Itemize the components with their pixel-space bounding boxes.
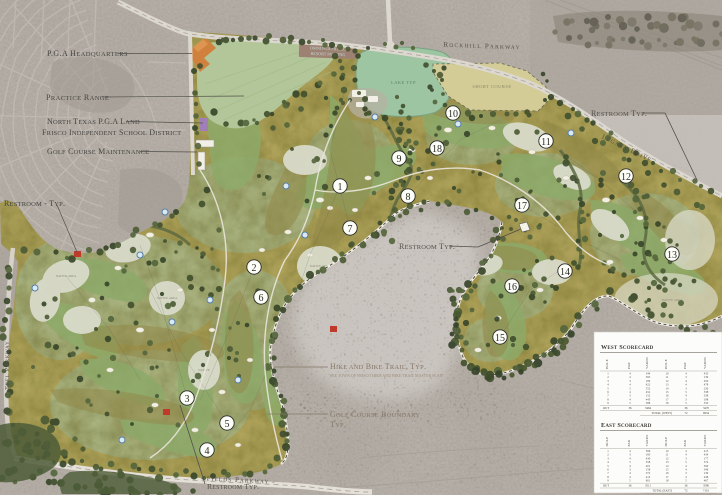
svg-text:WEST SCORECARD: WEST SCORECARD [601, 344, 654, 351]
svg-text:GOLF COURSE BOUNDARY: GOLF COURSE BOUNDARY [330, 410, 420, 419]
svg-text:12: 12 [621, 172, 631, 183]
svg-text:15: 15 [495, 333, 505, 344]
svg-text:601: 601 [646, 479, 651, 483]
svg-text:3511: 3511 [645, 484, 651, 488]
svg-text:16: 16 [507, 282, 517, 293]
svg-text:72: 72 [685, 411, 689, 415]
svg-text:3470: 3470 [703, 406, 710, 410]
svg-text:550: 550 [704, 401, 709, 405]
svg-text:3590: 3590 [703, 484, 710, 488]
svg-text:YARDS: YARDS [703, 357, 707, 369]
svg-text:EAST SCORECARD: EAST SCORECARD [601, 422, 652, 429]
svg-text:9: 9 [397, 154, 402, 165]
svg-text:YARDS: YARDS [645, 434, 649, 446]
svg-text:36: 36 [629, 484, 633, 488]
svg-text:TOTAL (WEST): TOTAL (WEST) [652, 411, 672, 415]
svg-text:PAR: PAR [683, 439, 687, 446]
svg-text:1: 1 [338, 182, 343, 193]
svg-text:NATIVE AREA: NATIVE AREA [56, 274, 78, 278]
svg-text:3464: 3464 [645, 406, 652, 410]
svg-text:LAKE TYP.: LAKE TYP. [391, 80, 417, 85]
svg-text:OUT: OUT [603, 406, 609, 410]
svg-text:36: 36 [685, 406, 689, 410]
svg-text:18: 18 [432, 144, 442, 155]
svg-text:467: 467 [704, 479, 709, 483]
svg-text:HOLE: HOLE [664, 437, 668, 447]
svg-text:14: 14 [560, 267, 570, 278]
svg-text:36: 36 [685, 484, 689, 488]
svg-text:SHORT COURSE: SHORT COURSE [472, 84, 511, 89]
svg-text:HOLE: HOLE [605, 359, 609, 369]
svg-text:P.G.A HEADQUARTERS: P.G.A HEADQUARTERS [47, 49, 128, 58]
svg-text:PRACTICE RANGE: PRACTICE RANGE [46, 93, 109, 102]
svg-text:72: 72 [685, 489, 689, 493]
svg-text:588: 588 [646, 401, 651, 405]
svg-text:TYP.: TYP. [330, 420, 346, 429]
svg-text:36: 36 [629, 406, 633, 410]
svg-text:18: 18 [666, 479, 670, 483]
svg-text:HOLE: HOLE [664, 359, 668, 369]
svg-text:PAR: PAR [627, 362, 631, 369]
svg-text:6934: 6934 [703, 411, 710, 415]
svg-text:7101: 7101 [703, 489, 710, 493]
svg-text:7: 7 [348, 224, 353, 235]
svg-text:NATIVE: NATIVE [198, 368, 210, 372]
svg-text:17: 17 [517, 201, 527, 212]
svg-text:11: 11 [541, 137, 551, 148]
svg-text:13: 13 [667, 250, 677, 261]
svg-text:HIKE AND BIKE TRAIL, TYP.: HIKE AND BIKE TRAIL, TYP. [330, 362, 426, 371]
svg-text:HOLE: HOLE [605, 437, 609, 447]
svg-text:YARDS: YARDS [703, 434, 707, 446]
svg-text:18: 18 [666, 401, 670, 405]
svg-text:2: 2 [252, 263, 257, 274]
svg-text:RESTROOM TYP.: RESTROOM TYP. [399, 242, 455, 251]
svg-text:10: 10 [448, 109, 458, 120]
svg-text:8: 8 [406, 192, 411, 203]
svg-text:PAR: PAR [683, 362, 687, 369]
svg-text:RESTROOM TYP.: RESTROOM TYP. [591, 109, 647, 118]
svg-text:YARDS: YARDS [645, 357, 649, 369]
svg-text:GOLF COURSE MAINTENANCE: GOLF COURSE MAINTENANCE [47, 147, 149, 156]
svg-text:RESTROOM - TYP.: RESTROOM - TYP. [4, 199, 65, 208]
svg-text:FRISCO INDEPENDENT SCHOOL DIST: FRISCO INDEPENDENT SCHOOL DISTRICT [42, 128, 181, 137]
svg-text:SEE TOWN OF FRISCO HIKE AND BI: SEE TOWN OF FRISCO HIKE AND BIKE TRAIL M… [330, 373, 443, 378]
svg-text:4: 4 [205, 446, 210, 457]
svg-text:5: 5 [225, 419, 230, 430]
svg-text:OUT: OUT [603, 484, 609, 488]
svg-text:PAR: PAR [627, 439, 631, 446]
svg-text:TOTAL (EAST): TOTAL (EAST) [652, 489, 672, 493]
svg-text:6: 6 [259, 293, 264, 304]
svg-text:TEEL PARKWAY: TEEL PARKWAY [4, 341, 11, 391]
svg-text:3: 3 [185, 394, 190, 405]
